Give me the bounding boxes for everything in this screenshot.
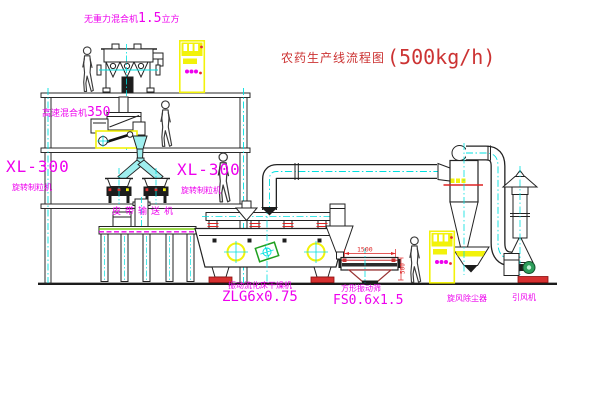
vibrating-sieve: 1500 500	[339, 246, 407, 284]
control-cabinet-top	[180, 41, 205, 93]
label-gravity-free-mixer: 无重力混合机1.5立方	[84, 12, 180, 25]
label-cyclone: 旋风除尘器	[447, 295, 487, 303]
exhaust-duct	[261, 163, 447, 216]
label-granulator-left-name: 旋转制粒机	[12, 184, 52, 192]
sieve-width-dimension: 1500	[357, 246, 373, 254]
diagram-title-capacity: (500kg/h)	[387, 45, 495, 69]
label-dryer-model: ZLG6x0.75	[222, 290, 298, 304]
label-sieve-model: FS0.6x1.5	[333, 294, 403, 307]
person-ground	[410, 237, 421, 282]
label-granulator-right-model: XL-300	[177, 162, 241, 178]
process-flow-diagram: 1500 500 农药生产线流程图(500kg/h) 无重力混合机1.5立方 高…	[0, 0, 600, 403]
sieve-height-dimension: 500	[400, 263, 407, 274]
control-cabinet-right	[430, 231, 455, 282]
label-sieve-name: 方形振动筛	[341, 285, 381, 293]
person-roof	[83, 47, 94, 91]
label-granulator-right-name: 旋转制粒机	[181, 187, 221, 195]
diagram-title-text: 农药生产线流程图	[281, 49, 385, 66]
label-belt-conveyor: 皮带输送机	[112, 208, 177, 217]
label-high-speed-mixer: 高速混合机350	[42, 106, 111, 119]
label-granulator-left-model: XL-300	[6, 159, 70, 175]
person-second-floor	[161, 101, 172, 146]
diagram-title: 农药生产线流程图(500kg/h)	[281, 45, 495, 69]
label-fan: 引风机	[512, 294, 536, 302]
